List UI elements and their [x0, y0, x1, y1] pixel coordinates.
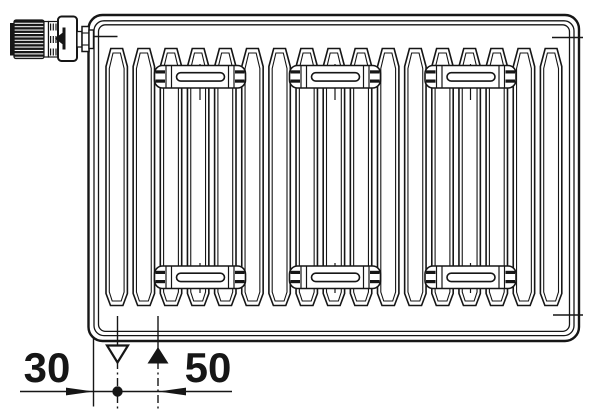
bracket-clip-mark: [291, 271, 301, 274]
fin: [513, 49, 534, 306]
bracket-clip-mark: [370, 80, 380, 83]
bracket-clip-mark: [291, 70, 301, 73]
bracket-slot: [312, 73, 360, 81]
bracket-slot: [177, 73, 225, 81]
bracket-slot: [447, 73, 495, 81]
return-triangle-up-icon: [148, 347, 169, 364]
dimension-dot: [112, 386, 122, 396]
fin: [540, 49, 561, 306]
bracket-clip-mark: [370, 70, 380, 73]
bracket-clip-mark: [506, 70, 516, 73]
valve-knurled-grip: [14, 20, 44, 59]
bracket-clip-mark: [235, 271, 245, 274]
bracket-slot: [177, 273, 225, 281]
bracket-clip-mark: [235, 70, 245, 73]
mounting-bracket: [290, 263, 381, 293]
fin: [269, 49, 290, 306]
bracket-clip-mark: [291, 280, 301, 283]
fin: [133, 49, 154, 306]
supply-triangle-down-icon: [107, 346, 128, 363]
fin: [242, 49, 263, 306]
bracket-clip-mark: [370, 280, 380, 283]
bracket-clip-mark: [291, 80, 301, 83]
valve-union-nut: [82, 27, 89, 52]
radiator-technical-drawing: 30 50: [0, 0, 600, 413]
thermostatic-valve: [10, 17, 94, 62]
bracket-clip-mark: [506, 271, 516, 274]
fin: [405, 49, 426, 306]
fin: [378, 49, 399, 306]
valve-tailpiece: [89, 30, 94, 49]
bracket-clip-mark: [370, 271, 380, 274]
bracket-clip-mark: [426, 70, 436, 73]
bracket-clip-mark: [426, 80, 436, 83]
mounting-bracket: [425, 263, 516, 293]
dimension-label-30: 30: [24, 344, 71, 391]
bracket-clip-mark: [426, 280, 436, 283]
bracket-clip-mark: [235, 280, 245, 283]
bracket-clip-mark: [156, 80, 166, 83]
dimension-arrow-left-icon: [159, 388, 187, 396]
bracket-clip-mark: [506, 280, 516, 283]
bracket-clip-mark: [156, 271, 166, 274]
bracket-clip-mark: [426, 271, 436, 274]
mounting-bracket: [155, 263, 246, 293]
bracket-slot: [312, 273, 360, 281]
bracket-clip-mark: [235, 80, 245, 83]
dimension-label-50: 50: [185, 344, 232, 391]
radiator-body: [89, 15, 584, 341]
bracket-clip-mark: [506, 80, 516, 83]
bracket-clip-mark: [156, 70, 166, 73]
valve-ring: [44, 22, 49, 58]
fin: [106, 49, 127, 306]
bracket-clip-mark: [156, 280, 166, 283]
bracket-slot: [447, 273, 495, 281]
